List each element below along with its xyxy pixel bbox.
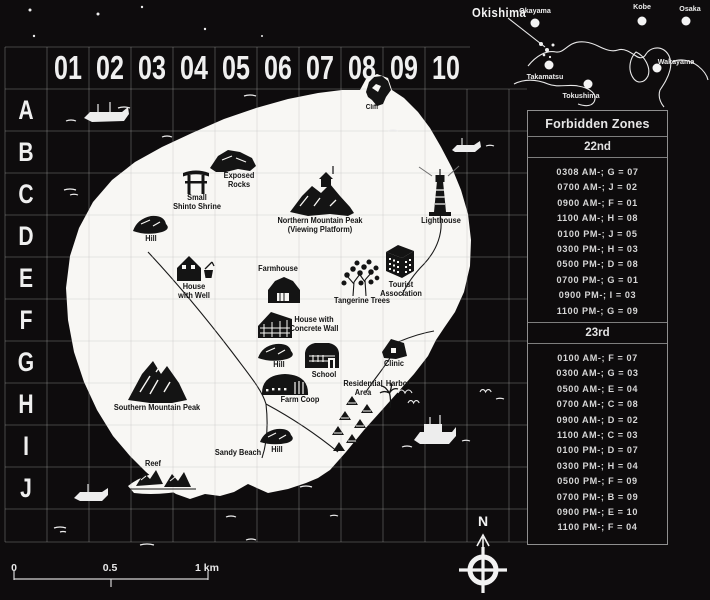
grid-col-label: 09 <box>388 46 420 88</box>
forbidden-zone-entry: 0900 PM-; I = 03 <box>531 288 664 303</box>
compass-north-label: N <box>468 513 498 529</box>
forbidden-zone-entry: 0300 AM-; G = 03 <box>531 366 664 381</box>
grid-col-label: 08 <box>346 46 378 88</box>
scale-end-label: 1 km <box>187 562 227 574</box>
location-label-clinic: Clinic <box>334 360 454 369</box>
day-header-23rd: 23rd <box>528 323 667 344</box>
location-label-house-with-concrete-wall: House with Concrete Wall <box>254 316 374 334</box>
minimap-city-osaka: Osaka <box>647 4 710 13</box>
island-map-screen: 01 02 03 04 05 06 07 08 09 10 A B C D E … <box>0 0 710 600</box>
location-label-lighthouse: Lighthouse <box>381 217 501 226</box>
forbidden-zone-entry: 1100 PM-; G = 09 <box>531 304 664 319</box>
scale-start-label: 0 <box>0 562 34 574</box>
minimap-city-okayama: Okayama <box>492 6 578 15</box>
forbidden-zones-panel: Forbidden Zones 22nd 0308 AM-; G = 07 07… <box>527 110 668 545</box>
grid-col-label: 06 <box>262 46 294 88</box>
grid-col-label: 05 <box>220 46 252 88</box>
location-label-house-with-well: House with Well <box>134 283 254 301</box>
forbidden-zone-entry: 0700 PM-; B = 09 <box>531 490 664 505</box>
location-label-tourist-association: Tourist Association <box>341 281 461 299</box>
forbidden-zones-list-23rd: 0100 AM-; F = 07 0300 AM-; G = 03 0500 A… <box>528 344 667 536</box>
location-label-northern-mountain-peak: Northern Mountain Peak (Viewing Platform… <box>260 217 380 235</box>
forbidden-zone-entry: 0300 PM-; H = 03 <box>531 242 664 257</box>
forbidden-zone-entry: 0300 PM-; H = 04 <box>531 459 664 474</box>
grid-col-label: 10 <box>430 46 462 88</box>
scale-middle-label: 0.5 <box>90 562 130 574</box>
forbidden-zone-entry: 1100 AM-; H = 08 <box>531 211 664 226</box>
forbidden-zone-entry: 0900 PM-; E = 10 <box>531 505 664 520</box>
grid-col-label: 01 <box>52 46 84 88</box>
location-label-hill-south: Hill <box>217 446 337 455</box>
minimap-city-tokushima: Tokushima <box>538 91 624 100</box>
grid-row-label: G <box>10 341 43 383</box>
forbidden-zone-entry: 0500 AM-; E = 04 <box>531 382 664 397</box>
grid-row-label: I <box>10 425 43 467</box>
location-label-hill-central: Hill <box>219 361 339 370</box>
location-label-southern-mountain-peak: Southern Mountain Peak <box>97 404 217 413</box>
grid-row-label: E <box>10 257 43 299</box>
location-label-exposed-rocks: Exposed Rocks <box>179 172 299 190</box>
location-label-harbor: Harbor <box>338 380 458 389</box>
grid-col-label: 03 <box>136 46 168 88</box>
location-label-small-shinto-shrine: Small Shinto Shrine <box>137 194 257 212</box>
forbidden-zone-entry: 0700 PM-; G = 01 <box>531 273 664 288</box>
forbidden-zones-title: Forbidden Zones <box>528 111 667 137</box>
location-label-cliff: Cliff <box>312 104 432 112</box>
grid-row-label: J <box>10 467 43 509</box>
grid-row-label: D <box>10 215 43 257</box>
grid-row-label: F <box>10 299 43 341</box>
forbidden-zone-entry: 0308 AM-; G = 07 <box>531 165 664 180</box>
location-label-farmhouse: Farmhouse <box>218 265 338 274</box>
grid-col-label: 04 <box>178 46 210 88</box>
forbidden-zone-entry: 1100 AM-; C = 03 <box>531 428 664 443</box>
forbidden-zone-entry: 0900 AM-; F = 01 <box>531 196 664 211</box>
forbidden-zones-list-22nd: 0308 AM-; G = 07 0700 AM-; J = 02 0900 A… <box>528 158 667 323</box>
forbidden-zone-entry: 0100 AM-; F = 07 <box>531 351 664 366</box>
grid-col-label: 07 <box>304 46 336 88</box>
day-header-22nd: 22nd <box>528 137 667 158</box>
forbidden-zone-entry: 0100 PM-; D = 07 <box>531 443 664 458</box>
location-label-reef: Reef <box>93 460 213 469</box>
forbidden-zone-entry: 0700 AM-; J = 02 <box>531 180 664 195</box>
forbidden-zone-entry: 0700 AM-; C = 08 <box>531 397 664 412</box>
grid-row-label: B <box>10 131 43 173</box>
forbidden-zone-entry: 0500 PM-; F = 09 <box>531 474 664 489</box>
grid-col-label: 02 <box>94 46 126 88</box>
forbidden-zone-entry: 0900 AM-; D = 02 <box>531 413 664 428</box>
forbidden-zone-entry: 0500 PM-; D = 08 <box>531 257 664 272</box>
grid-row-label: H <box>10 383 43 425</box>
minimap-city-wakayama: Wakayama <box>633 57 710 66</box>
grid-row-label: C <box>10 173 43 215</box>
forbidden-zone-entry: 1100 PM-; F = 04 <box>531 520 664 535</box>
grid-row-label: A <box>10 89 43 131</box>
location-label-hill-north: Hill <box>91 235 211 244</box>
forbidden-zone-entry: 0100 PM-; J = 05 <box>531 227 664 242</box>
minimap-city-takamatsu: Takamatsu <box>502 72 588 81</box>
